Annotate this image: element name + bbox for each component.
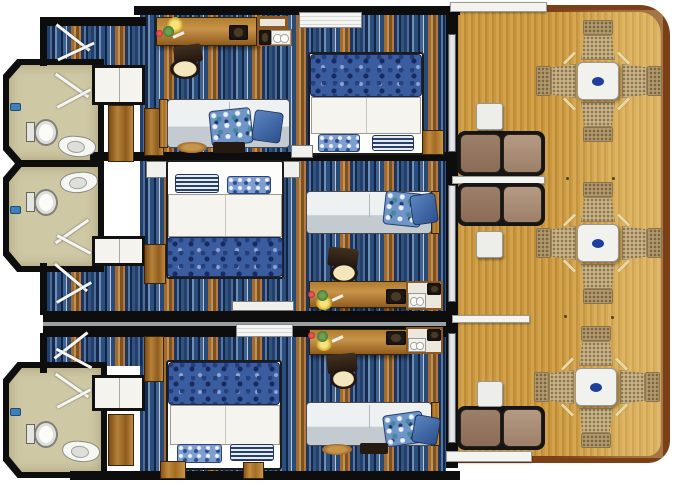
dining3-chair-bottom xyxy=(579,408,613,448)
cabin3-ceiling-vent xyxy=(236,324,293,337)
dining2-chair-top xyxy=(581,182,615,222)
dining3-chair-top xyxy=(579,326,613,366)
cabin2-tv-bench xyxy=(232,301,294,311)
dining2-table xyxy=(577,224,619,262)
cabin1-pillow-striped xyxy=(372,135,414,151)
cabin3-chair-seat xyxy=(330,369,357,389)
balcony-side-table-2 xyxy=(476,231,503,258)
cabin1-sofa-pillow-blue xyxy=(251,109,284,144)
cabin2-bed-blanket xyxy=(167,237,283,277)
lounger-1-back-cushion xyxy=(460,134,501,173)
lounger-2-seat-cushion xyxy=(503,186,542,223)
dining1-table xyxy=(577,62,619,100)
cabin2-sofa-pillow-blue xyxy=(409,192,439,225)
balcony-divider-2-3 xyxy=(452,315,530,323)
cabin2-rose xyxy=(308,291,315,298)
cabin2-bed-duvet xyxy=(168,194,282,237)
cabin1-vanity-sinks xyxy=(271,30,291,45)
lounger-1-seat-cushion xyxy=(503,134,542,173)
cabin3-floor-tray xyxy=(322,444,352,455)
entry2-carpet xyxy=(47,266,142,312)
cabin3-sofa-pillow-blue xyxy=(411,414,441,446)
dining3-chair-left xyxy=(534,370,574,404)
cabin1-side-table xyxy=(291,145,313,158)
closet-cabin2 xyxy=(92,236,145,266)
cabin3-plant xyxy=(317,331,328,342)
cabin1-floor-tray xyxy=(177,142,207,153)
deck-screw-dot-1 xyxy=(566,177,569,180)
toilet-bowl-3 xyxy=(34,421,58,448)
lounger-3-seat-cushion xyxy=(503,409,542,447)
cabin1-vanity-mirror xyxy=(257,16,288,29)
cabin1-ceiling-vent xyxy=(299,12,362,28)
cabin3-bed-duvet xyxy=(170,405,280,445)
cabin2-pillow-floral xyxy=(227,176,271,194)
entry3-left-wall xyxy=(40,333,47,373)
dining1-chair-left xyxy=(536,64,576,98)
cabin1-chair-seat xyxy=(170,59,200,79)
balcony-top-railing xyxy=(450,2,547,12)
towel-3 xyxy=(10,408,21,416)
towel-2 xyxy=(10,206,21,214)
toilet-bowl-2 xyxy=(34,189,58,216)
dining1-chair-right xyxy=(622,64,662,98)
cabin3-nightstand-right xyxy=(243,462,264,479)
dining2-chair-right xyxy=(622,226,662,260)
balcony-door-cabin1 xyxy=(448,34,456,152)
cabin1-floor-mat xyxy=(213,142,245,153)
entry3-wood-floor xyxy=(108,414,134,466)
top-wall xyxy=(134,6,460,15)
cabin1-bed-duvet xyxy=(311,97,421,134)
deck-screw-dot-2 xyxy=(612,177,615,180)
balcony-side-table-3 xyxy=(477,381,503,407)
dining1-chair-top xyxy=(581,20,615,60)
closet-cabin1 xyxy=(92,65,145,105)
cabin3-pillow-striped xyxy=(230,444,274,461)
balcony-bottom-railing xyxy=(446,451,532,462)
cabin2-hall-wood xyxy=(144,244,166,284)
bottom-wall xyxy=(70,471,460,480)
balcony-side-table-1 xyxy=(476,103,503,130)
deck-screw-dot-3 xyxy=(564,315,567,318)
dining3-table xyxy=(575,368,617,406)
dining3-chair-right xyxy=(620,370,660,404)
cabin3-hotplate xyxy=(427,329,441,341)
cabin2-vanity-sinks xyxy=(408,293,426,308)
cabin1-nightstand xyxy=(422,130,444,155)
floor-plan xyxy=(0,0,680,491)
cabin3-hall-wood xyxy=(144,336,164,382)
lounger-2-back-cushion xyxy=(460,186,501,223)
double-wall-upper xyxy=(43,311,458,322)
dining2-chair-bottom xyxy=(581,264,615,304)
cabin2-plant xyxy=(317,290,328,301)
cabin1-rose xyxy=(156,30,163,37)
entry2-left-wall xyxy=(40,263,47,315)
closet-cabin3 xyxy=(92,375,145,411)
towel-1 xyxy=(10,103,21,111)
cabin1-hotplate xyxy=(259,30,271,45)
lounger-3-back-cushion xyxy=(460,409,501,447)
entry1-wood-floor xyxy=(108,105,134,162)
cabin1-pillow-floral xyxy=(318,134,360,152)
cabin3-vanity-sinks xyxy=(408,338,426,352)
cabin2-hotplate xyxy=(427,283,441,295)
balcony-door-cabin3 xyxy=(448,333,456,443)
cabin1-amenity-tray xyxy=(229,25,248,40)
cabin3-nightstand-left xyxy=(160,461,186,479)
cabin3-amenity-tray xyxy=(386,331,406,345)
balcony-door-cabin2 xyxy=(448,185,456,302)
cabin2-pillow-striped xyxy=(175,174,219,193)
cabin3-rose xyxy=(308,332,315,339)
dining2-chair-left xyxy=(536,226,576,260)
cabin2-chair-seat xyxy=(330,263,358,283)
toilet-bowl-1 xyxy=(34,119,58,146)
cabin2-amenity-tray xyxy=(386,289,406,304)
cabin3-floor-mat xyxy=(360,443,388,454)
entry1-left-wall xyxy=(40,17,47,66)
dining1-chair-bottom xyxy=(581,102,615,142)
deck-screw-dot-4 xyxy=(611,316,614,319)
cabin2-nightstand-left xyxy=(146,161,168,178)
cabin1-bed-blanket xyxy=(310,54,422,97)
cabin3-bed-blanket xyxy=(168,362,280,405)
